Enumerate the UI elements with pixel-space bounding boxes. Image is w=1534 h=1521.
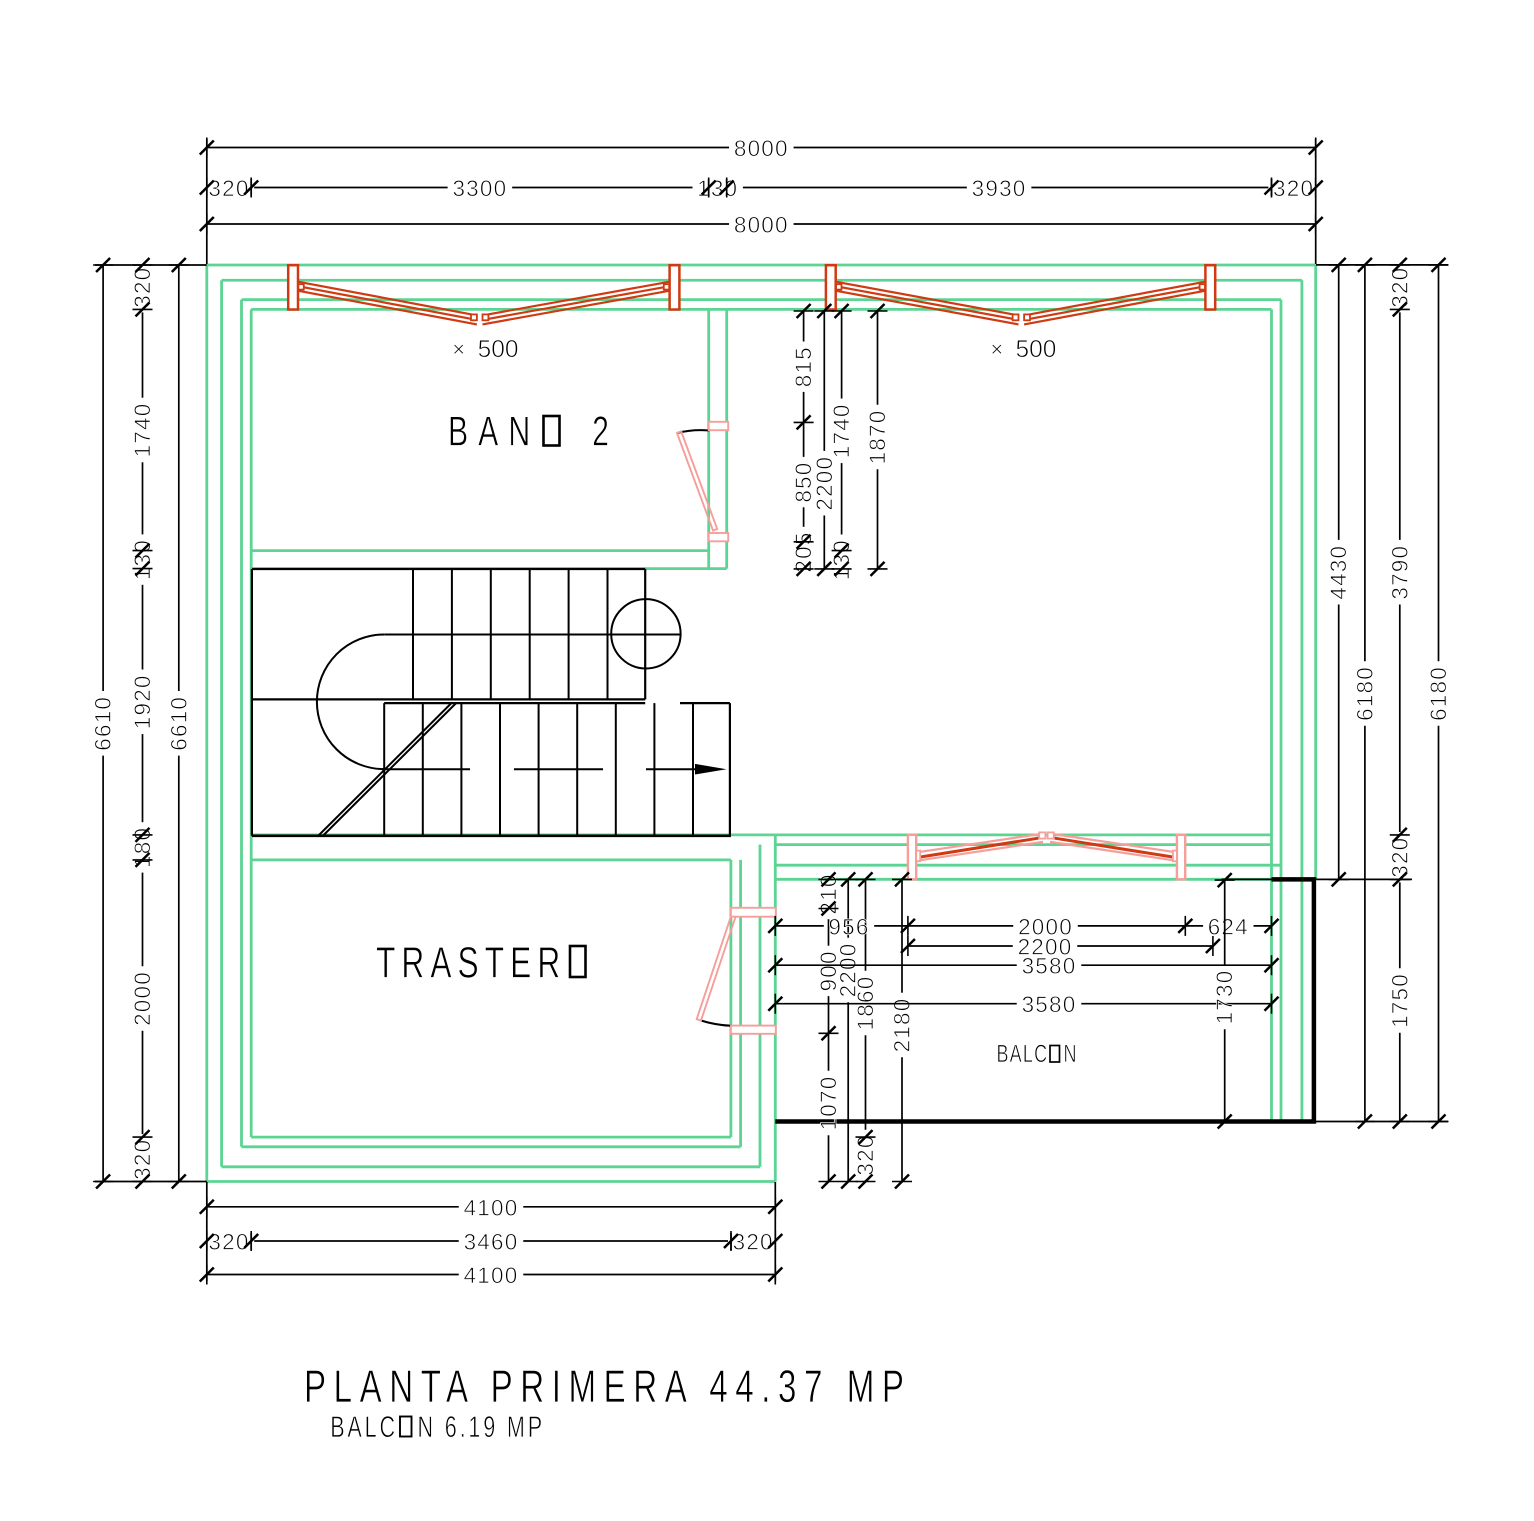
svg-text:320: 320 bbox=[1387, 267, 1412, 308]
svg-text:6180: 6180 bbox=[1426, 666, 1451, 721]
svg-text:3580: 3580 bbox=[1022, 992, 1077, 1017]
svg-text:1070: 1070 bbox=[816, 1076, 841, 1131]
svg-text:320: 320 bbox=[208, 176, 249, 201]
svg-text:205: 205 bbox=[791, 531, 816, 572]
svg-text:3790: 3790 bbox=[1387, 545, 1412, 600]
svg-text:3300: 3300 bbox=[452, 176, 507, 201]
svg-text:3460: 3460 bbox=[464, 1230, 519, 1255]
svg-text:3930: 3930 bbox=[972, 176, 1027, 201]
svg-text:3580: 3580 bbox=[1022, 954, 1077, 979]
svg-text:956: 956 bbox=[828, 914, 869, 939]
svg-text:2180: 2180 bbox=[890, 998, 915, 1053]
svg-text:6180: 6180 bbox=[1352, 666, 1377, 721]
svg-text:500: 500 bbox=[478, 336, 519, 363]
svg-text:6610: 6610 bbox=[166, 696, 191, 751]
svg-text:4100: 4100 bbox=[464, 1195, 519, 1220]
svg-text:1750: 1750 bbox=[1387, 973, 1412, 1028]
svg-text:320: 320 bbox=[1273, 176, 1314, 201]
svg-text:×: × bbox=[990, 337, 1003, 362]
svg-text:2200: 2200 bbox=[812, 456, 837, 511]
svg-text:4100: 4100 bbox=[464, 1263, 519, 1288]
svg-text:320: 320 bbox=[208, 1230, 249, 1255]
svg-text:×: × bbox=[452, 337, 465, 362]
svg-text:815: 815 bbox=[791, 346, 816, 387]
svg-text:8000: 8000 bbox=[734, 213, 789, 238]
svg-text:320: 320 bbox=[733, 1230, 774, 1255]
svg-text:1740: 1740 bbox=[829, 403, 854, 458]
svg-text:320: 320 bbox=[130, 267, 155, 308]
svg-text:500: 500 bbox=[1015, 336, 1056, 363]
svg-text:6610: 6610 bbox=[91, 696, 116, 751]
svg-text:1920: 1920 bbox=[130, 674, 155, 729]
svg-text:BALCON: BALCON bbox=[996, 1040, 1076, 1068]
svg-text:2000: 2000 bbox=[130, 971, 155, 1026]
svg-text:4430: 4430 bbox=[1326, 545, 1351, 600]
svg-text:1730: 1730 bbox=[1212, 970, 1237, 1025]
svg-text:PLANTA PRIMERA 44.37 MP: PLANTA PRIMERA 44.37 MP bbox=[304, 1360, 904, 1412]
svg-text:130: 130 bbox=[829, 539, 854, 580]
svg-text:320: 320 bbox=[1387, 837, 1412, 878]
svg-text:320: 320 bbox=[853, 1134, 878, 1175]
svg-text:1870: 1870 bbox=[865, 410, 890, 465]
svg-text:130: 130 bbox=[697, 176, 738, 201]
svg-text:180: 180 bbox=[130, 827, 155, 868]
svg-text:320: 320 bbox=[130, 1139, 155, 1180]
svg-text:1740: 1740 bbox=[130, 403, 155, 458]
svg-text:624: 624 bbox=[1208, 914, 1249, 939]
svg-text:130: 130 bbox=[130, 539, 155, 580]
svg-text:8000: 8000 bbox=[734, 136, 789, 161]
